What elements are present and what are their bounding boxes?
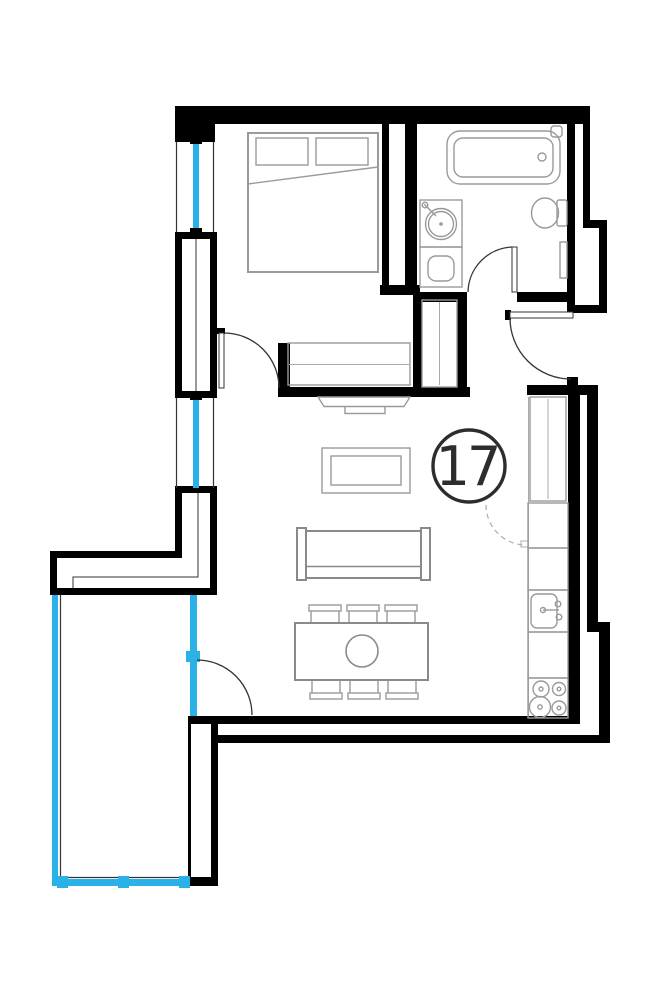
wall-segment: [405, 120, 417, 295]
wall-segment: [278, 387, 470, 397]
glazing-mullion: [179, 876, 190, 888]
door-swing-arc: [510, 318, 571, 379]
toilet: [532, 198, 568, 228]
wall-segment: [568, 387, 580, 724]
wall-segment: [188, 716, 580, 724]
bathroom-door: [468, 247, 517, 292]
chair: [386, 681, 418, 699]
burner: [552, 701, 566, 715]
dining-set: [295, 605, 428, 699]
sofa-armrest: [297, 528, 306, 580]
balcony-right-wall: [188, 724, 218, 886]
chair: [310, 681, 342, 699]
floor-plan: 17: [0, 0, 659, 1000]
tub-drain: [538, 153, 546, 161]
wall-segment: [175, 106, 215, 142]
glazing-mullion: [57, 876, 68, 888]
left-wall-pillar: [175, 232, 217, 398]
balcony-door: [186, 595, 252, 716]
tv: [318, 397, 410, 414]
counter-cell: [528, 632, 568, 678]
entry-door: [505, 310, 573, 379]
pillow: [256, 138, 308, 165]
cabinet-handle: [521, 541, 528, 547]
bathroom: [420, 126, 567, 287]
bathtub: [447, 126, 562, 184]
sofa-armrest: [421, 528, 430, 580]
wall-segment: [587, 387, 598, 628]
wall-segment: [567, 120, 575, 307]
glazing: [52, 139, 252, 888]
door-swing-arc: [197, 660, 252, 715]
unit-number: 17: [436, 435, 499, 498]
burner: [553, 683, 566, 696]
burner: [530, 697, 551, 718]
coffee-table: [322, 448, 410, 493]
wall-segment: [457, 292, 467, 397]
kitchen-sink: [528, 590, 568, 632]
balcony-glazing: [52, 595, 190, 888]
living-room: [295, 397, 430, 699]
blanket-fold: [248, 167, 378, 184]
window-1: [177, 139, 214, 233]
wall-segment: [382, 124, 389, 293]
wall-segment: [413, 295, 422, 397]
hallway-closet: [422, 300, 457, 387]
door-swing-arc: [468, 247, 512, 292]
chair: [385, 605, 417, 623]
pillow: [316, 138, 368, 165]
counter-cell: [528, 503, 568, 548]
doors: [217, 247, 573, 388]
double-bed: [248, 133, 378, 272]
dining-table: [295, 623, 428, 680]
chair: [348, 681, 380, 699]
door-swing-arc: [224, 333, 279, 388]
chair: [347, 605, 379, 623]
wall-segment: [212, 735, 610, 743]
wall-segment: [599, 226, 607, 313]
bedroom-door: [217, 328, 279, 388]
chair: [309, 605, 341, 623]
window-2: [177, 395, 214, 488]
radiator: [560, 242, 567, 278]
wall-segment: [583, 106, 590, 222]
wall-segment: [599, 630, 610, 743]
cabinet-swing-dashed: [486, 505, 526, 545]
washbasin: [420, 200, 462, 247]
counter-cell: [528, 548, 568, 590]
tall-cabinet: [530, 397, 566, 501]
wall-segment: [517, 292, 573, 302]
walls: [50, 106, 610, 886]
washing-machine: [420, 247, 462, 287]
wall-segment: [175, 106, 590, 124]
stove: [528, 678, 568, 718]
sofa: [297, 528, 430, 580]
bedroom-wardrobe: [288, 343, 410, 385]
glazing-mullion: [118, 876, 129, 888]
unit-label: 17: [433, 430, 505, 502]
balcony-corner-wall: [50, 486, 217, 595]
burner: [533, 681, 549, 697]
floor-plan-drawing: 17: [0, 0, 659, 1000]
